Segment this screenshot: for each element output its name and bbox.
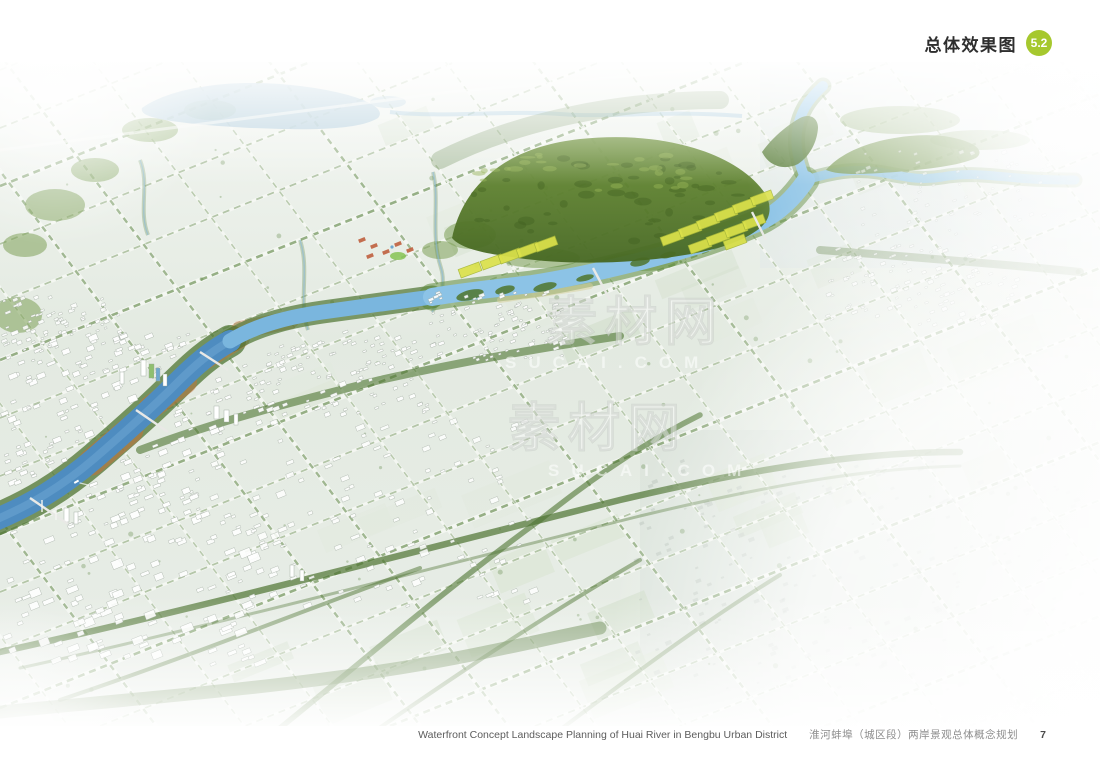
section-number-badge: 5.2	[1026, 30, 1052, 56]
footer-title-english: Waterfront Concept Landscape Planning of…	[418, 729, 787, 741]
watermark-url-text: SUCAI.COM	[505, 353, 710, 372]
footer-title-chinese: 淮河蚌埠（城区段）两岸景观总体概念规划	[809, 727, 1018, 742]
watermark-brand-text: 素材网	[508, 400, 688, 458]
watermark-brand-text: 素材网	[545, 294, 725, 352]
page-number: 7	[1040, 729, 1046, 741]
page-title: 总体效果图	[925, 31, 1018, 56]
page-footer: Waterfront Concept Landscape Planning of…	[418, 727, 1046, 742]
masterplan-rendering: 素材网SUCAI.COM素材网SUCAI.COM	[0, 0, 1100, 778]
document-page: 素材网SUCAI.COM素材网SUCAI.COM 总体效果图 5.2 Water…	[0, 0, 1100, 778]
page-header: 总体效果图 5.2	[925, 30, 1053, 56]
watermark-url-text: SUCAI.COM	[548, 461, 753, 480]
